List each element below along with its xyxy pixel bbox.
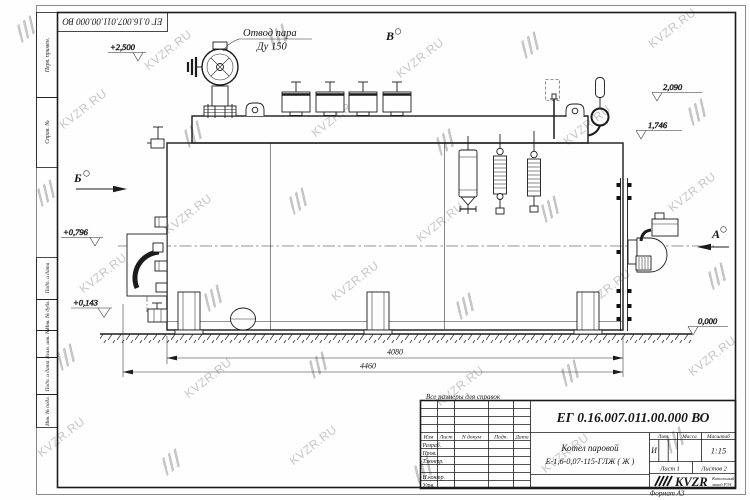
tb-sheet-count: Листов 2 xyxy=(700,465,728,472)
strip-label: Подп. и дата xyxy=(44,262,51,294)
tb-row-prov: Пров. xyxy=(422,451,437,457)
tb-name-line2: Е-1,6-0,07-115-ГЛЖ ( Ж ) xyxy=(545,457,635,466)
callout-line2: Ду 150 xyxy=(256,42,287,53)
callout-line1: Отвод пара xyxy=(243,28,297,39)
tb-row-nkontr: Н.контр. xyxy=(422,475,445,481)
elevation-0000: 0,000 xyxy=(698,316,718,326)
manhole xyxy=(231,308,256,330)
dim-4460-text: 4460 xyxy=(360,362,376,371)
tb-name-line1: Котел паровой xyxy=(560,443,619,453)
tb-scale-label: Масштаб xyxy=(706,433,730,440)
strip-label: Подп. и дата xyxy=(44,360,51,392)
company-line1: Котельный xyxy=(711,476,735,481)
tb-doc-number: ЕГ 0.16.007.011.00.000 ВО xyxy=(556,410,710,425)
tb-scale-value: 1:15 xyxy=(711,446,727,456)
company-line2: завод РЭ1 xyxy=(711,482,732,487)
tb-row-razrab: Разраб. xyxy=(422,442,442,449)
tb-lit-label: Лит. xyxy=(657,434,670,440)
steam-outlet-valve xyxy=(188,42,238,118)
strip-label: Инв. № дубл. xyxy=(44,300,51,330)
title-block: Изм Лист N докум Подп. Дата Разраб. Пров… xyxy=(421,401,736,498)
burner-box xyxy=(127,234,167,312)
strip-label: Перв. примен. xyxy=(45,38,51,73)
tb-header-izm: Изм xyxy=(423,435,434,441)
boiler-body xyxy=(118,116,714,330)
elevation-1746: 1,746 xyxy=(648,120,668,130)
ground-hatch xyxy=(100,334,692,343)
tb-header-ndocum: N докум xyxy=(461,434,482,441)
elevation-2090: 2,090 xyxy=(663,82,683,92)
view-b-label: Б xyxy=(73,171,82,185)
company-logo-text: KVZR xyxy=(674,475,708,489)
elevation-2500: +2,500 xyxy=(110,42,136,52)
dim-4080-text: 4080 xyxy=(387,348,403,357)
left-margin-strip: Перв. примен. Справ. № Подп. и дата Инв.… xyxy=(37,13,58,428)
strip-label: Инв. № подл. xyxy=(44,396,51,427)
tb-header-podp: Подп. xyxy=(493,434,508,441)
strip-label: Справ. № xyxy=(45,120,51,144)
view-v-label: В xyxy=(385,29,394,43)
top-inverted-stamp: ЕГ 0.16.007.011.00.000 ВО xyxy=(58,13,168,32)
elevation-0143: +0,143 xyxy=(73,298,98,308)
format-note: Формат А3 xyxy=(650,490,685,498)
elevation-0796: +0,796 xyxy=(63,227,89,237)
tb-sheet-number: Лист 1 xyxy=(659,465,680,472)
tb-row-utv: Утв. xyxy=(423,483,435,489)
view-a-label: А xyxy=(711,227,720,241)
tb-header-list: Лист xyxy=(438,435,452,441)
fan-assembly xyxy=(628,213,678,272)
stamp-doc-number: ЕГ 0.16.007.011.00.000 ВО xyxy=(62,17,164,27)
tb-header-data: Дата xyxy=(514,435,528,441)
strip-label: Взам. инв. № xyxy=(45,329,51,359)
view-markers: Б В А xyxy=(73,29,729,251)
drawing-sheet: KVZR.RUKVZR.RUKVZR.RUKVZR.RUKVZR.RUKVZR.… xyxy=(0,0,750,500)
safety-valves xyxy=(282,82,411,116)
tb-lit-value: И xyxy=(650,446,658,455)
steam-outlet-callout: Отвод пара Ду 150 xyxy=(223,28,312,53)
boiler-drawing-svg: Перв. примен. Справ. № Подп. и дата Инв.… xyxy=(0,0,750,500)
tb-mass-label: Масса xyxy=(681,434,697,440)
tb-row-tkontr: Т.контр. xyxy=(423,459,444,465)
